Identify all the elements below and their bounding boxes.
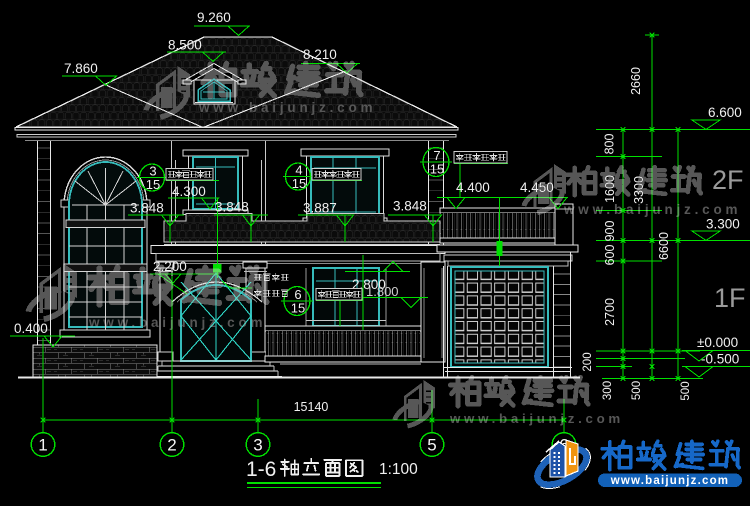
- svg-text:1:100: 1:100: [379, 461, 418, 478]
- svg-text:15: 15: [292, 176, 306, 191]
- svg-text:800: 800: [603, 134, 617, 155]
- svg-text:2: 2: [167, 436, 176, 455]
- svg-text:15: 15: [146, 177, 160, 192]
- svg-text:8.210: 8.210: [303, 47, 337, 62]
- svg-text:8.500: 8.500: [168, 38, 202, 53]
- svg-text:3.848: 3.848: [393, 199, 427, 214]
- svg-text:300: 300: [602, 381, 614, 400]
- svg-text:1F: 1F: [714, 283, 746, 313]
- svg-text:500: 500: [631, 381, 643, 400]
- svg-text:15140: 15140: [294, 400, 329, 414]
- svg-text:www.baijunjz.com: www.baijunjz.com: [198, 100, 376, 115]
- svg-text:1-6: 1-6: [246, 458, 276, 481]
- svg-text:6.600: 6.600: [708, 105, 742, 120]
- svg-text:2F: 2F: [712, 165, 744, 195]
- svg-text:www.baijunjz.com: www.baijunjz.com: [449, 411, 624, 426]
- svg-text:2660: 2660: [629, 67, 643, 95]
- svg-text:600: 600: [603, 245, 617, 266]
- svg-text:www.baijunjz.com: www.baijunjz.com: [563, 202, 741, 217]
- svg-text:2700: 2700: [603, 298, 617, 326]
- svg-text:±0.000: ±0.000: [697, 335, 738, 350]
- svg-text:200: 200: [582, 352, 594, 371]
- svg-text:1.800: 1.800: [366, 284, 399, 299]
- svg-text:15: 15: [291, 301, 305, 316]
- svg-text:3.848: 3.848: [215, 200, 249, 215]
- svg-text:3.887: 3.887: [303, 201, 337, 216]
- svg-text:-0.500: -0.500: [701, 352, 739, 367]
- svg-text:4.300: 4.300: [172, 184, 206, 199]
- svg-text:www.baijunjz.com: www.baijunjz.com: [610, 475, 729, 487]
- svg-text:7.860: 7.860: [64, 61, 98, 76]
- svg-text:3.848: 3.848: [130, 201, 164, 216]
- svg-text:9.260: 9.260: [197, 10, 231, 25]
- svg-text:15: 15: [430, 162, 444, 177]
- svg-text:3: 3: [253, 436, 262, 455]
- svg-text:4.400: 4.400: [456, 180, 490, 195]
- svg-text:900: 900: [603, 221, 617, 242]
- svg-text:0.400: 0.400: [14, 321, 48, 336]
- svg-text:www.baijunjz.com: www.baijunjz.com: [88, 315, 266, 330]
- svg-text:500: 500: [680, 381, 692, 400]
- svg-text:3.300: 3.300: [706, 217, 740, 232]
- svg-text:1: 1: [38, 436, 47, 455]
- svg-text:6600: 6600: [657, 232, 671, 260]
- svg-text:5: 5: [427, 436, 436, 455]
